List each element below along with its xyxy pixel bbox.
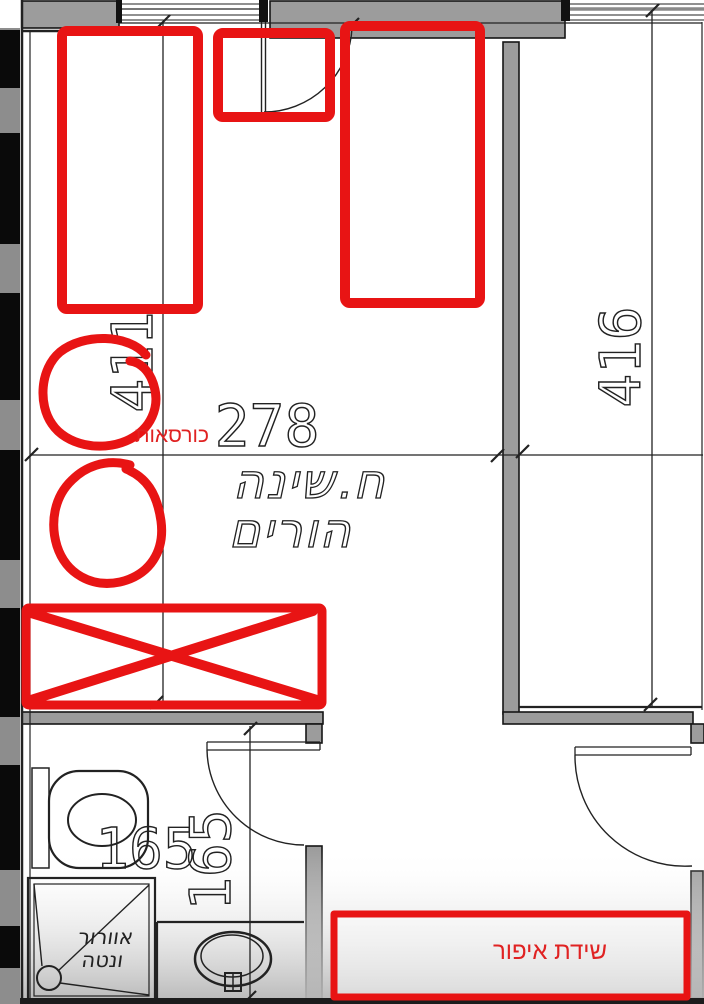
dim-bedroom-right-height: 416 — [594, 287, 650, 427]
annotation-bed-right — [345, 26, 480, 303]
annotation-circle-lower — [54, 463, 162, 584]
bathroom-door — [207, 742, 320, 845]
wall-bath-jamb-top — [306, 724, 322, 743]
red-annotations — [0, 0, 704, 1004]
wall-right-lower — [691, 871, 703, 998]
shower — [28, 878, 155, 1002]
dim-bedroom-left-height: 411 — [106, 292, 162, 432]
wall-lower-horizontal — [503, 712, 693, 724]
dim-bedroom-width: 278 — [197, 397, 337, 455]
shower-note-line1: אוורור — [77, 925, 135, 949]
wall-bath-right-lower — [306, 846, 322, 1004]
annotation-box-top — [218, 33, 330, 117]
bottom-edge — [20, 998, 704, 1004]
window-top-right — [567, 4, 704, 20]
door-top — [262, 22, 353, 112]
plan-linework — [0, 0, 704, 1004]
paper-background — [0, 0, 704, 1004]
dimension-ticks — [25, 4, 659, 1004]
wall-center-vertical — [503, 42, 519, 714]
door-lower-right — [575, 747, 692, 866]
room-label-line2: הורים — [189, 506, 400, 556]
shower-note-line2: ונטה — [80, 948, 125, 972]
annotation-makeup-dresser — [334, 914, 687, 997]
window-top-left — [119, 4, 263, 20]
wall-bath-divider — [22, 712, 323, 724]
bottom-fade — [20, 848, 704, 1002]
dim-bathroom-width: 165 — [76, 822, 216, 878]
shower-note: אוורור ונטה — [41, 926, 167, 972]
faucet — [225, 973, 241, 991]
wall-top-left — [22, 1, 119, 28]
room-label-line1: ח.שינה — [208, 457, 419, 507]
dimension-lines — [30, 10, 703, 1001]
annotation-bed-left — [62, 31, 198, 309]
bathroom-fixtures — [28, 742, 320, 1003]
walls — [22, 1, 704, 1004]
wall-top-middle — [270, 1, 565, 38]
dim-bathroom-depth: 165 — [184, 790, 240, 930]
floorplan-canvas: 278 411 416 165 165 ח.שינה הורים אוורור … — [0, 0, 704, 1004]
annotation-circle-upper — [43, 338, 156, 446]
annotation-crossed-box — [26, 608, 322, 705]
sink — [157, 922, 304, 1003]
shower-drain — [37, 966, 61, 990]
wall-right-jamb — [691, 724, 704, 743]
armchairs-label: כורסאות — [112, 424, 232, 448]
left-edge-strip — [0, 28, 20, 1004]
structure-lines — [22, 0, 704, 1004]
toilet — [32, 768, 148, 868]
makeup-dresser-label: שידת איפור — [460, 939, 640, 965]
